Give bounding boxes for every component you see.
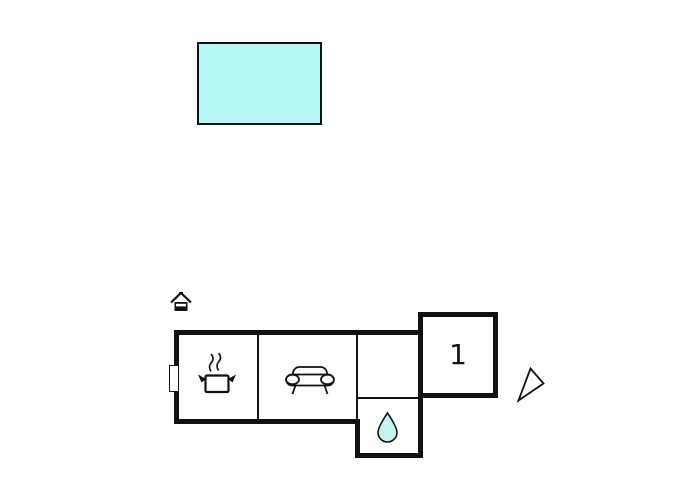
wall	[418, 398, 423, 458]
bedroom-number-label: 1	[449, 341, 467, 369]
wall	[174, 419, 360, 424]
direction-arrow-icon	[514, 365, 548, 405]
wall	[493, 312, 498, 398]
wall	[355, 453, 423, 458]
water-drop-icon	[375, 411, 400, 444]
window-marker	[169, 365, 179, 392]
sofa-icon	[284, 361, 336, 397]
swimming-pool	[197, 42, 322, 125]
house-icon	[170, 291, 192, 314]
cooking-pot-icon	[196, 350, 238, 396]
room-hallway	[358, 335, 418, 397]
floorplan-canvas: 1	[0, 0, 700, 500]
wall	[418, 393, 498, 398]
water-drop-shape	[378, 413, 397, 442]
room-bedroom-1: 1	[423, 317, 493, 393]
